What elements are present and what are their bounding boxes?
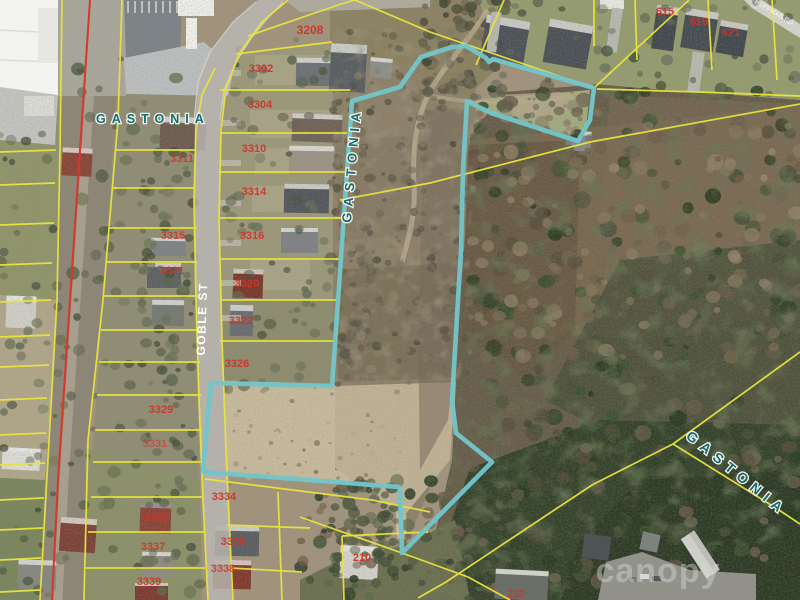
svg-text:canopy: canopy	[595, 552, 720, 590]
svg-text:3339: 3339	[137, 576, 161, 588]
svg-text:615: 615	[656, 6, 674, 18]
svg-text:3336: 3336	[221, 536, 245, 548]
svg-text:3338: 3338	[211, 563, 235, 575]
svg-text:3321: 3321	[160, 265, 184, 277]
svg-text:3304: 3304	[248, 99, 273, 111]
svg-text:3334: 3334	[212, 491, 237, 503]
svg-text:232: 232	[508, 589, 525, 600]
svg-text:3322: 3322	[229, 315, 253, 327]
svg-text:3329: 3329	[149, 404, 173, 416]
svg-text:3302: 3302	[249, 63, 273, 75]
svg-text:3316: 3316	[240, 230, 264, 242]
svg-text:3310: 3310	[242, 143, 266, 155]
svg-text:3314: 3314	[242, 186, 267, 198]
svg-text:3311: 3311	[170, 153, 194, 165]
svg-text:3208: 3208	[297, 23, 324, 37]
svg-text:3326: 3326	[225, 358, 249, 370]
svg-text:210: 210	[353, 552, 371, 564]
svg-text:GOBLE ST: GOBLE ST	[194, 282, 211, 356]
svg-text:3315: 3315	[161, 230, 185, 242]
svg-text:619: 619	[690, 16, 708, 28]
svg-text:GASTONIA: GASTONIA	[96, 112, 210, 126]
svg-text:3337: 3337	[141, 541, 165, 553]
svg-text:621: 621	[722, 27, 740, 39]
svg-text:3320: 3320	[235, 278, 259, 290]
svg-text:3335: 3335	[144, 512, 168, 524]
svg-text:3331: 3331	[143, 438, 167, 450]
